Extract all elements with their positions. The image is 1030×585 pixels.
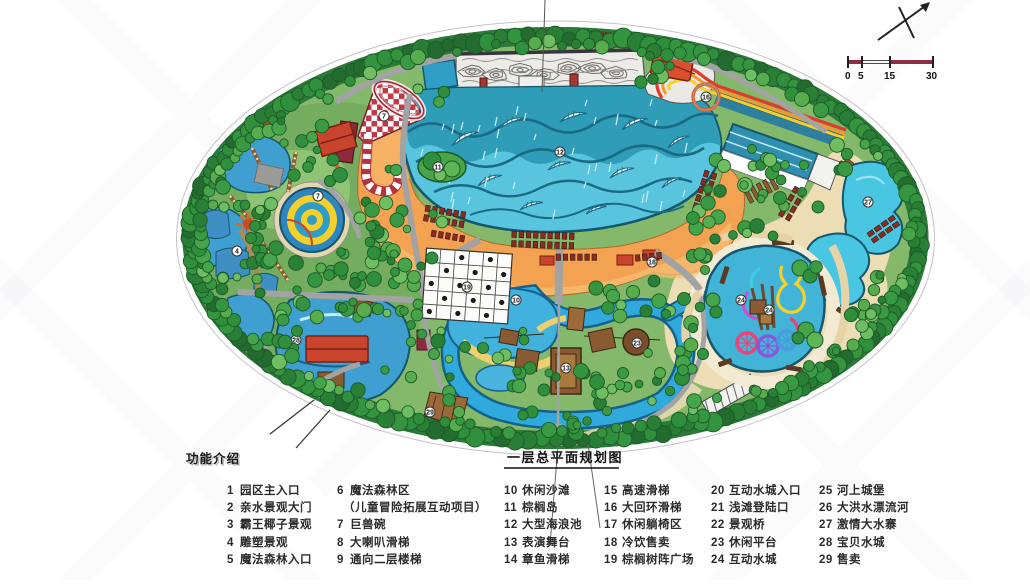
- svg-text:11: 11: [434, 165, 442, 172]
- svg-text:29: 29: [819, 554, 833, 566]
- svg-text:激情大水寨: 激情大水寨: [837, 517, 897, 531]
- svg-text:5: 5: [227, 554, 234, 566]
- svg-text:30: 30: [926, 71, 938, 82]
- svg-text:功能介绍: 功能介绍: [186, 451, 240, 466]
- svg-text:表演舞台: 表演舞台: [521, 535, 570, 549]
- svg-text:24: 24: [765, 308, 773, 315]
- svg-text:售卖: 售卖: [836, 552, 861, 566]
- svg-text:河上城堡: 河上城堡: [837, 483, 885, 497]
- svg-text:21: 21: [711, 502, 725, 514]
- svg-text:15: 15: [884, 71, 896, 82]
- svg-text:24: 24: [711, 554, 725, 566]
- svg-text:魔法森林入口: 魔法森林入口: [240, 552, 312, 566]
- svg-text:3: 3: [227, 519, 234, 531]
- svg-text:12: 12: [556, 150, 564, 157]
- svg-text:18: 18: [648, 260, 656, 267]
- svg-text:28: 28: [819, 537, 833, 549]
- svg-text:棕榈树阵广场: 棕榈树阵广场: [621, 552, 694, 566]
- svg-text:24: 24: [737, 298, 745, 305]
- svg-text:高速滑梯: 高速滑梯: [622, 483, 670, 497]
- svg-text:棕榈岛: 棕榈岛: [521, 500, 558, 514]
- svg-text:5: 5: [858, 71, 864, 82]
- svg-text:10: 10: [512, 298, 520, 305]
- svg-text:大洪水漂流河: 大洪水漂流河: [837, 500, 909, 514]
- svg-text:休闲平台: 休闲平台: [728, 535, 777, 549]
- svg-text:13: 13: [504, 537, 518, 549]
- svg-text:互动水城: 互动水城: [729, 552, 777, 566]
- svg-text:2: 2: [227, 502, 234, 514]
- svg-text:27: 27: [864, 200, 872, 207]
- svg-text:互动水城入口: 互动水城入口: [729, 483, 801, 497]
- svg-text:15: 15: [604, 485, 618, 497]
- svg-text:亲水景观大门: 亲水景观大门: [240, 500, 312, 514]
- svg-text:29: 29: [426, 410, 434, 417]
- svg-text:17: 17: [604, 519, 618, 531]
- svg-text:通向二层楼梯: 通向二层楼梯: [350, 552, 422, 566]
- svg-text:0: 0: [845, 71, 851, 82]
- svg-text:10: 10: [504, 485, 518, 497]
- svg-text:冷饮售卖: 冷饮售卖: [622, 535, 670, 549]
- svg-text:7: 7: [337, 519, 344, 531]
- svg-text:霸王椰子景观: 霸王椰子景观: [240, 517, 312, 531]
- svg-text:23: 23: [633, 341, 641, 348]
- svg-text:12: 12: [504, 519, 518, 531]
- svg-text:大回环滑梯: 大回环滑梯: [622, 500, 682, 514]
- svg-text:25: 25: [819, 485, 833, 497]
- svg-text:16: 16: [702, 95, 710, 102]
- svg-text:13: 13: [562, 366, 570, 373]
- svg-text:一层总平面规划图: 一层总平面规划图: [507, 450, 623, 465]
- svg-text:大喇叭滑梯: 大喇叭滑梯: [350, 535, 410, 549]
- svg-text:4: 4: [235, 249, 239, 256]
- svg-text:8: 8: [337, 537, 344, 549]
- svg-text:7: 7: [382, 114, 386, 121]
- svg-text:18: 18: [604, 537, 618, 549]
- svg-text:19: 19: [463, 285, 471, 292]
- svg-text:章鱼滑梯: 章鱼滑梯: [522, 552, 570, 566]
- svg-text:6: 6: [337, 485, 344, 497]
- svg-text:20: 20: [711, 485, 725, 497]
- svg-text:大型海浪池: 大型海浪池: [522, 517, 582, 531]
- svg-text:22: 22: [711, 519, 725, 531]
- svg-text:27: 27: [819, 519, 833, 531]
- svg-text:（儿童冒险拓展互动项目）: （儿童冒险拓展互动项目）: [343, 500, 487, 514]
- svg-text:4: 4: [227, 537, 234, 549]
- svg-text:景观桥: 景观桥: [728, 517, 765, 531]
- svg-text:7: 7: [316, 194, 320, 201]
- svg-text:14: 14: [504, 554, 518, 566]
- svg-text:19: 19: [604, 554, 618, 566]
- svg-text:9: 9: [337, 554, 344, 566]
- svg-text:浅滩登陆口: 浅滩登陆口: [729, 500, 789, 514]
- svg-text:魔法森林区: 魔法森林区: [350, 483, 410, 497]
- svg-text:23: 23: [711, 537, 725, 549]
- svg-text:巨兽碗: 巨兽碗: [350, 517, 386, 531]
- svg-text:11: 11: [504, 502, 517, 514]
- svg-text:园区主入口: 园区主入口: [240, 483, 300, 497]
- svg-text:1: 1: [227, 485, 234, 497]
- svg-text:26: 26: [819, 502, 833, 514]
- svg-text:雕塑景观: 雕塑景观: [240, 535, 288, 549]
- svg-text:16: 16: [604, 502, 618, 514]
- svg-text:休闲沙滩: 休闲沙滩: [521, 483, 570, 497]
- svg-text:宝贝水城: 宝贝水城: [837, 535, 885, 549]
- svg-text:休闲躺椅区: 休闲躺椅区: [621, 517, 682, 531]
